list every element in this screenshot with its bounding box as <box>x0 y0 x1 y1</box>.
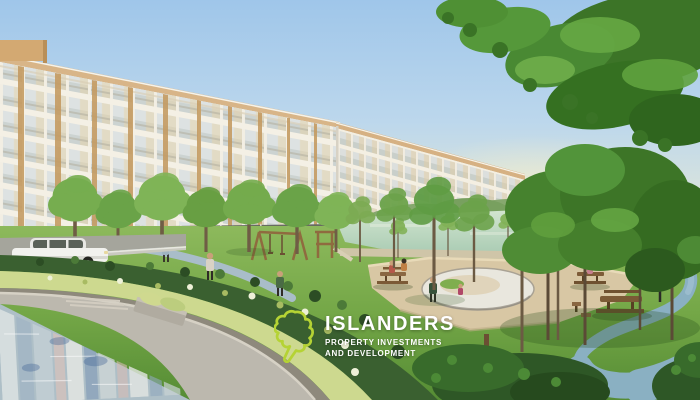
scene-rendering <box>0 0 700 400</box>
person-sitting <box>401 259 407 272</box>
parapet-block <box>0 40 46 61</box>
rendering-canvas: ISLANDERS PROPERTY INVESTMENTS AND DEVEL… <box>0 0 700 400</box>
child <box>458 284 463 295</box>
